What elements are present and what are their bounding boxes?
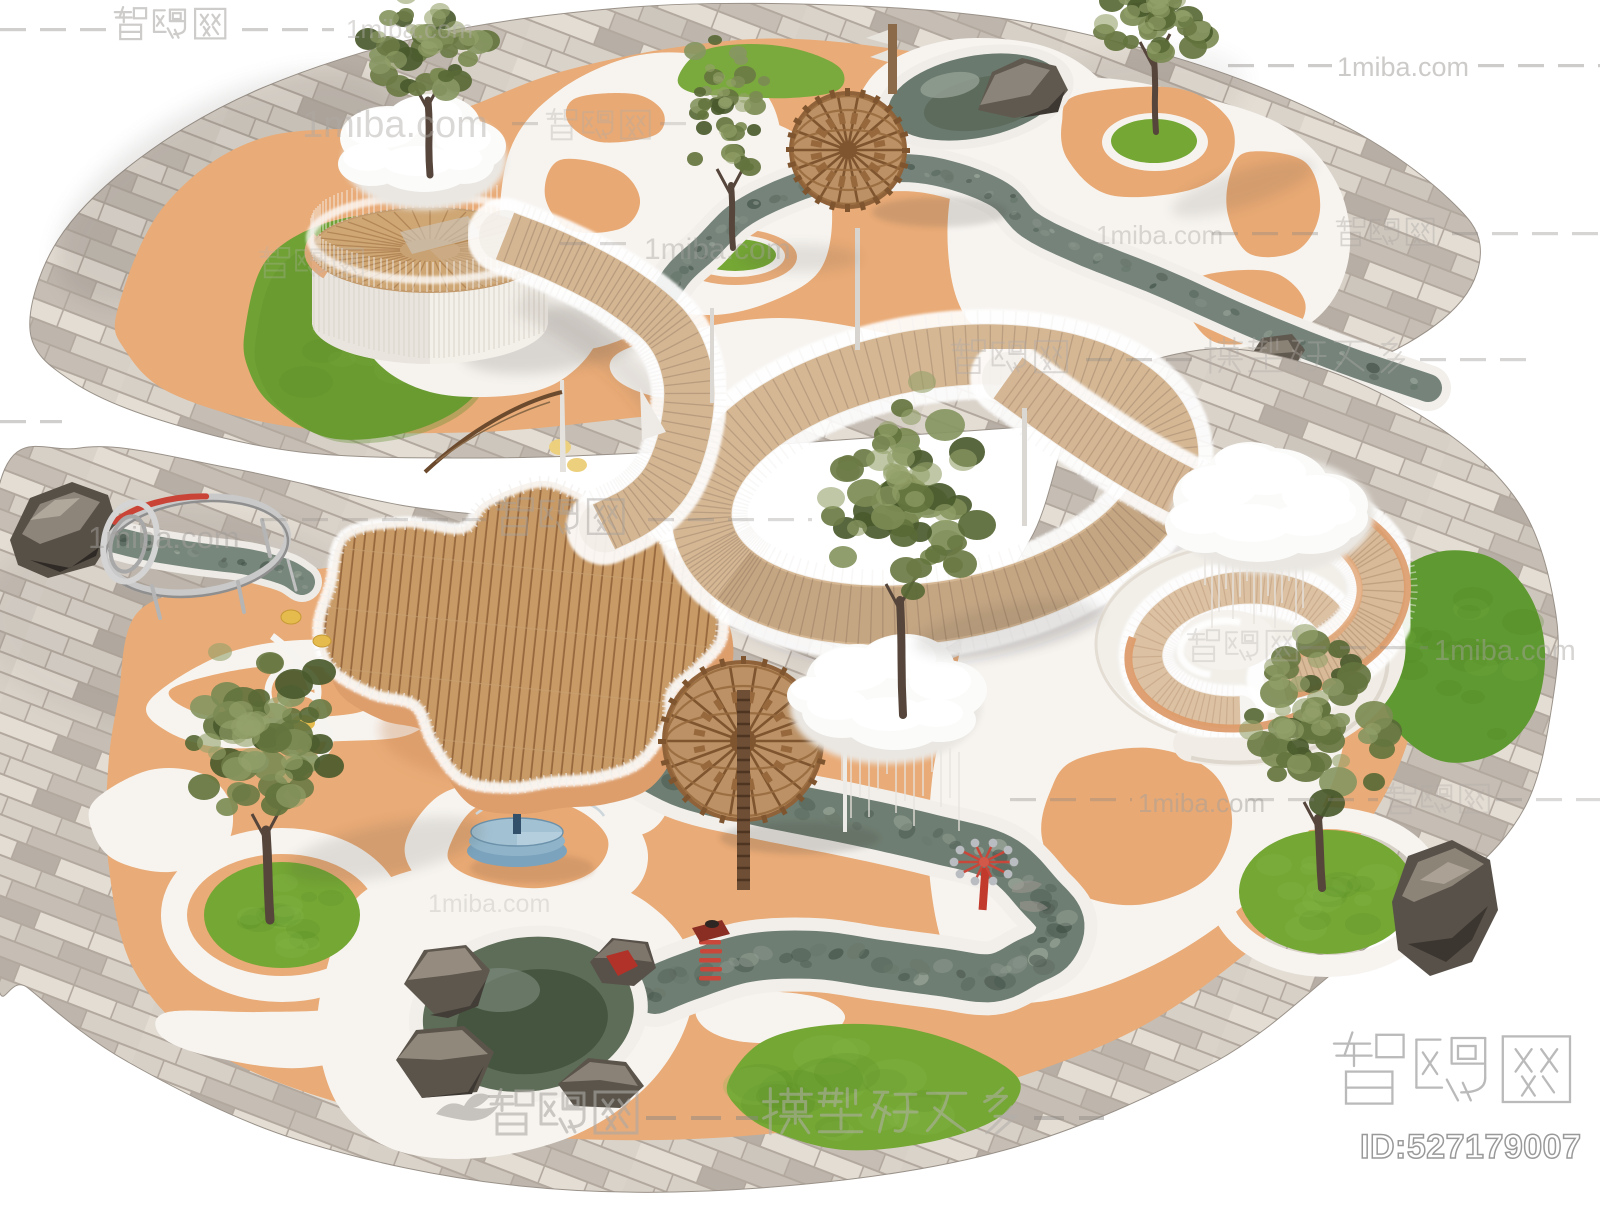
svg-text:ID:527179007: ID:527179007 [1360,1128,1582,1166]
svg-text:1miba.com: 1miba.com [346,14,473,44]
svg-text:1miba.com: 1miba.com [428,890,550,918]
svg-text:1miba.com: 1miba.com [1434,635,1576,667]
svg-text:1miba.com: 1miba.com [1096,220,1223,250]
svg-text:1miba.com: 1miba.com [88,520,240,555]
svg-text:1miba.com: 1miba.com [1138,788,1265,818]
svg-text:1miba.com: 1miba.com [644,233,791,266]
svg-text:1miba.com: 1miba.com [302,104,488,146]
svg-text:1miba.com: 1miba.com [1337,52,1469,82]
